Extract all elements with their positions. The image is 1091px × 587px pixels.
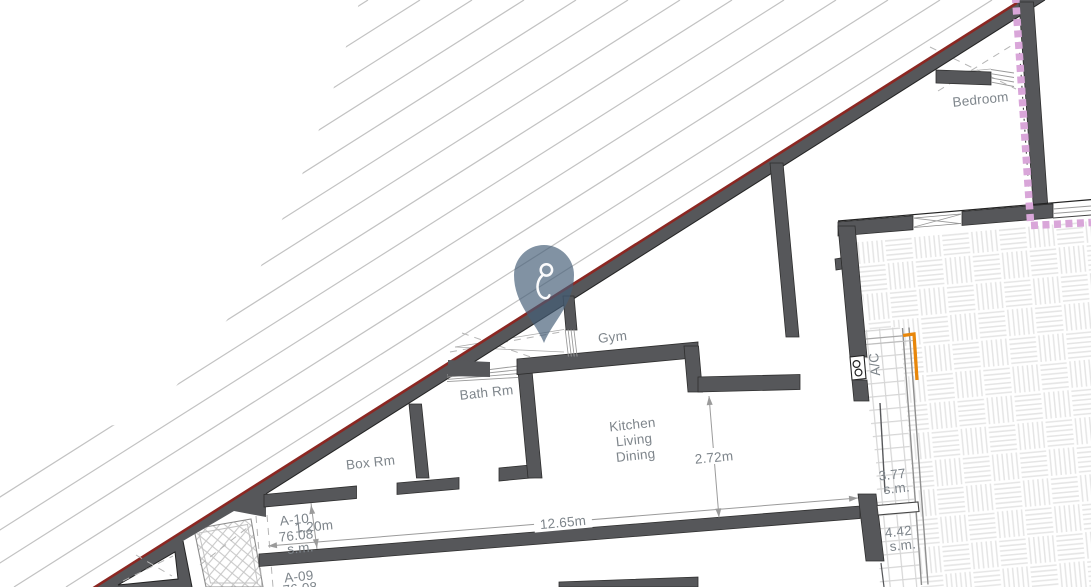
svg-text:Bath Rm: Bath Rm [459, 382, 514, 403]
svg-text:A/C: A/C [866, 352, 883, 376]
svg-text:s.m.: s.m. [287, 539, 315, 557]
svg-text:Gym: Gym [597, 328, 628, 346]
svg-text:Bedroom: Bedroom [952, 89, 1009, 110]
svg-text:s.m.: s.m. [889, 536, 917, 554]
svg-text:s.m.: s.m. [883, 479, 911, 497]
svg-text:Box Rm: Box Rm [345, 452, 396, 472]
svg-text:Dining: Dining [615, 446, 656, 465]
svg-text:2.72m: 2.72m [694, 448, 734, 466]
svg-text:A-10: A-10 [279, 511, 310, 529]
